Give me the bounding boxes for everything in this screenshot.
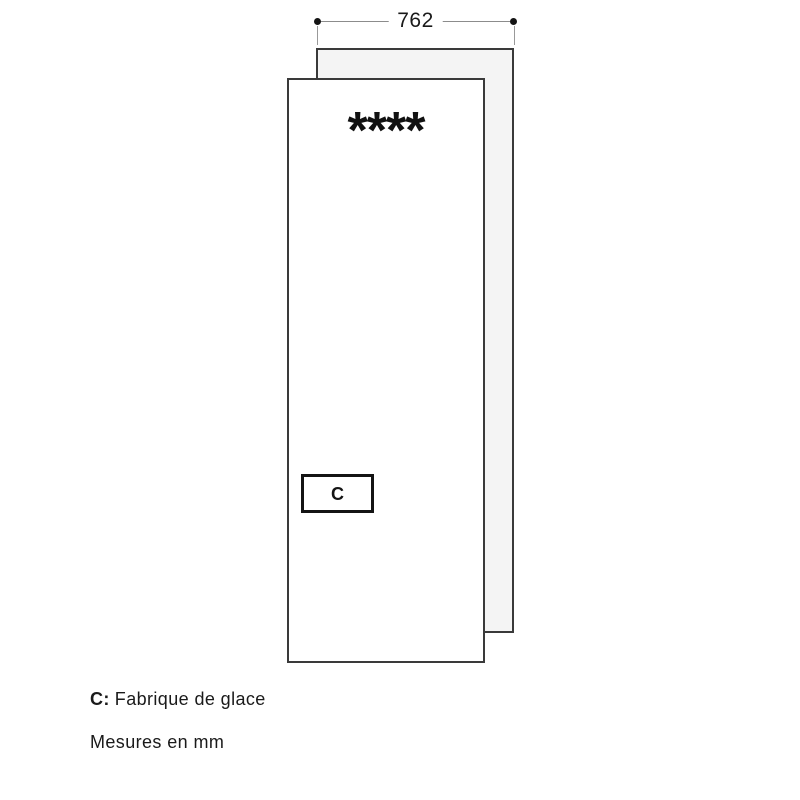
legend-units-note: Mesures en mm [90, 731, 266, 753]
dimension-endpoint-dot-left [314, 18, 321, 25]
legend-ice-maker-line: C:Fabrique de glace [90, 688, 266, 710]
width-dimension: 762 [317, 14, 514, 48]
dimension-extension-tick-right [514, 26, 515, 45]
dimension-label: 762 [388, 9, 443, 33]
dimension-endpoint-dot-right [510, 18, 517, 25]
ice-maker-callout-box: C [301, 474, 374, 513]
ice-maker-callout-label: C [331, 485, 344, 503]
legend-ice-maker-key: C: [90, 689, 110, 709]
appliance-front-door [287, 78, 485, 663]
legend-ice-maker-text: Fabrique de glace [115, 689, 266, 709]
diagram-canvas: 762 **** C C:Fabrique de glace Mesures e… [0, 0, 800, 800]
dimension-extension-tick-left [317, 26, 318, 45]
legend: C:Fabrique de glace Mesures en mm [90, 688, 266, 753]
freezer-star-rating: **** [287, 105, 485, 157]
